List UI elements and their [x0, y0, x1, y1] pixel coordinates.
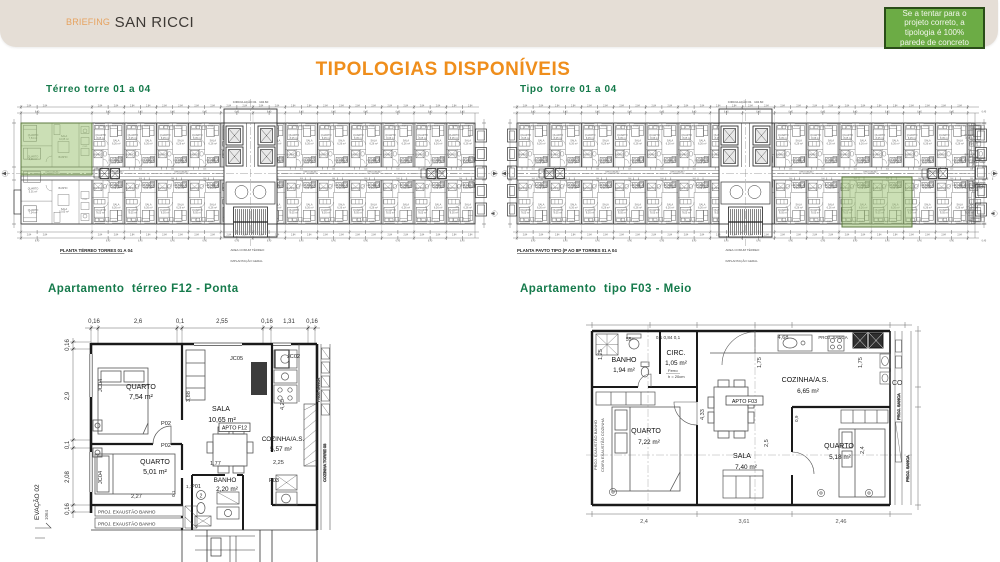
- svg-text:2,84: 2,84: [323, 105, 328, 107]
- svg-text:0,1: 0,1: [176, 319, 185, 325]
- svg-text:10,65 m²: 10,65 m²: [59, 211, 69, 214]
- svg-text:QUARTO: QUARTO: [824, 443, 854, 450]
- svg-text:6,26 m²: 6,26 m²: [209, 206, 218, 209]
- svg-text:6,40: 6,40: [428, 240, 433, 242]
- svg-text:BANHO: BANHO: [518, 154, 527, 157]
- svg-text:JC04 2,15 JC05: JC04 2,15 JC05: [589, 126, 607, 128]
- svg-text:104: 104: [300, 168, 303, 170]
- svg-text:CIRCULAÇÃO: CIRCULAÇÃO: [670, 170, 685, 173]
- svg-text:5,09 m²: 5,09 m²: [633, 162, 642, 165]
- svg-text:5,09 m²: 5,09 m²: [176, 187, 185, 190]
- svg-text:2,84: 2,84: [162, 234, 167, 236]
- svg-text:BANHO: BANHO: [383, 187, 392, 190]
- svg-text:JC04 2,15 JC05: JC04 2,15 JC05: [653, 126, 671, 128]
- svg-text:BANHO: BANHO: [905, 154, 914, 157]
- svg-text:BANHO: BANHO: [551, 154, 560, 157]
- svg-text:BANHO: BANHO: [126, 187, 135, 190]
- svg-text:COZINHA/A.S.: COZINHA/A.S.: [262, 436, 305, 443]
- svg-text:JC04 2,15 JC05: JC04 2,15 JC05: [621, 221, 639, 223]
- svg-text:2,84: 2,84: [291, 105, 296, 107]
- svg-text:8,05 m²: 8,05 m²: [96, 212, 105, 215]
- svg-text:8,05 m²: 8,05 m²: [586, 212, 595, 215]
- svg-text:2,84: 2,84: [571, 105, 576, 107]
- svg-text:8,05 m²: 8,05 m²: [290, 212, 299, 215]
- svg-text:5,09 m²: 5,09 m²: [665, 187, 674, 190]
- svg-text:BANHO: BANHO: [965, 154, 974, 157]
- svg-text:2,84: 2,84: [635, 105, 640, 107]
- svg-text:5,09 m²: 5,09 m²: [111, 187, 120, 190]
- svg-text:6,26 m²: 6,26 m²: [827, 142, 836, 145]
- svg-text:2,84: 2,84: [571, 234, 576, 236]
- svg-text:8,05 m²: 8,05 m²: [965, 212, 974, 215]
- svg-text:1,31: 1,31: [283, 319, 295, 325]
- svg-text:6,26 m²: 6,26 m²: [464, 206, 473, 209]
- svg-text:6,40: 6,40: [756, 111, 761, 113]
- svg-text:2,84: 2,84: [877, 234, 882, 236]
- svg-text:6,26 m²: 6,26 m²: [969, 206, 978, 209]
- svg-text:104: 104: [950, 168, 953, 170]
- svg-text:6,40: 6,40: [202, 240, 207, 242]
- svg-text:JC04 2,15 JC05: JC04 2,15 JC05: [557, 126, 575, 128]
- svg-text:JC04 2,15 JC05: JC04 2,15 JC05: [293, 126, 311, 128]
- svg-text:4,68: 4,68: [778, 335, 789, 341]
- svg-text:2,84: 2,84: [259, 105, 264, 107]
- svg-text:5,09 m²: 5,09 m²: [463, 162, 472, 165]
- svg-text:2,84: 2,84: [684, 234, 689, 236]
- svg-text:2,84: 2,84: [468, 234, 473, 236]
- svg-text:6,26 m²: 6,26 m²: [112, 206, 121, 209]
- svg-text:6,26 m²: 6,26 m²: [794, 206, 803, 209]
- svg-text:6,40: 6,40: [595, 111, 600, 113]
- svg-text:5,09 m²: 5,09 m²: [536, 162, 545, 165]
- svg-text:7,54 m²: 7,54 m²: [129, 394, 153, 401]
- svg-text:QUARTO: QUARTO: [126, 384, 156, 391]
- svg-text:2,84: 2,84: [780, 105, 785, 107]
- svg-text:IMPLANTAÇÃO GERAL: IMPLANTAÇÃO GERAL: [726, 258, 759, 263]
- svg-text:6,40: 6,40: [982, 111, 987, 113]
- svg-text:8,05 m²: 8,05 m²: [322, 137, 331, 140]
- svg-text:QUARTO: QUARTO: [140, 459, 170, 466]
- svg-text:2,84: 2,84: [893, 234, 898, 236]
- svg-text:CIRCULAÇÃO: CIRCULAÇÃO: [541, 170, 556, 173]
- svg-text:6,40: 6,40: [627, 240, 632, 242]
- svg-text:2,84: 2,84: [114, 105, 119, 107]
- svg-text:5,09 m²: 5,09 m²: [826, 162, 835, 165]
- svg-text:2,84: 2,84: [178, 234, 183, 236]
- svg-text:JC04 2,15 JC05: JC04 2,15 JC05: [814, 126, 832, 128]
- svg-text:5,09 m²: 5,09 m²: [633, 187, 642, 190]
- svg-text:6,40: 6,40: [692, 111, 697, 113]
- svg-text:2,84: 2,84: [98, 234, 103, 236]
- svg-text:8,05 m²: 8,05 m²: [386, 137, 395, 140]
- svg-text:5,09 m²: 5,09 m²: [601, 162, 610, 165]
- svg-text:2,84: 2,84: [893, 105, 898, 107]
- svg-text:2,84: 2,84: [307, 105, 312, 107]
- svg-text:1,1: 1,1: [186, 484, 193, 489]
- svg-text:BANHO: BANHO: [319, 187, 328, 190]
- svg-text:BANHO: BANHO: [351, 187, 360, 190]
- svg-text:JC04 2,15 JC05: JC04 2,15 JC05: [325, 126, 343, 128]
- svg-text:2,84: 2,84: [162, 105, 167, 107]
- svg-text:5,09 m²: 5,09 m²: [697, 187, 706, 190]
- svg-text:104: 104: [660, 168, 663, 170]
- svg-text:6,40: 6,40: [724, 240, 729, 242]
- svg-text:2,84: 2,84: [194, 234, 199, 236]
- svg-text:AREA COMUM TÉRREO: AREA COMUM TÉRREO: [726, 247, 760, 252]
- svg-text:BANHO: BANHO: [214, 477, 237, 484]
- svg-text:2,84: 2,84: [619, 105, 624, 107]
- svg-text:JC04 2,15 JC05: JC04 2,15 JC05: [782, 126, 800, 128]
- svg-text:2,84: 2,84: [404, 105, 409, 107]
- svg-text:8,05 m²: 8,05 m²: [290, 137, 299, 140]
- svg-text:2,84: 2,84: [635, 234, 640, 236]
- svg-text:8,05 m²: 8,05 m²: [354, 137, 363, 140]
- svg-text:5,09 m²: 5,09 m²: [143, 162, 152, 165]
- svg-text:104: 104: [171, 168, 174, 170]
- svg-text:8,05 m²: 8,05 m²: [450, 137, 459, 140]
- svg-text:2,84: 2,84: [619, 234, 624, 236]
- svg-text:CIRCULAÇÃO: CIRCULAÇÃO: [174, 170, 189, 173]
- svg-text:2,84: 2,84: [210, 105, 215, 107]
- svg-text:JC04 2,15 JC05: JC04 2,15 JC05: [963, 126, 981, 128]
- svg-text:5,09 m²: 5,09 m²: [463, 187, 472, 190]
- svg-text:6,40: 6,40: [138, 111, 143, 113]
- svg-text:2,84: 2,84: [371, 105, 376, 107]
- svg-text:2,9: 2,9: [65, 391, 71, 400]
- svg-text:2,84: 2,84: [114, 234, 119, 236]
- svg-text:5,09 m²: 5,09 m²: [568, 187, 577, 190]
- svg-text:2,84: 2,84: [323, 234, 328, 236]
- svg-text:BANHO: BANHO: [351, 154, 360, 157]
- svg-text:JC04 2,15 JC05: JC04 2,15 JC05: [557, 221, 575, 223]
- svg-text:104: 104: [171, 178, 174, 180]
- svg-text:104: 104: [332, 178, 335, 180]
- svg-text:6,40: 6,40: [756, 240, 761, 242]
- svg-text:6,26 m²: 6,26 m²: [434, 206, 443, 209]
- svg-text:6,40: 6,40: [396, 111, 401, 113]
- svg-text:JC04 2,15 JC05: JC04 2,15 JC05: [100, 221, 118, 223]
- svg-text:BANHO: BANHO: [447, 154, 456, 157]
- svg-text:6,26 m²: 6,26 m²: [369, 142, 378, 145]
- svg-text:6,26 m²: 6,26 m²: [891, 142, 900, 145]
- svg-text:6,40: 6,40: [106, 240, 111, 242]
- svg-text:104: 104: [364, 168, 367, 170]
- svg-text:2,84: 2,84: [404, 234, 409, 236]
- svg-text:104: 104: [950, 178, 953, 180]
- svg-text:BANHO: BANHO: [158, 154, 167, 157]
- svg-text:8,05 m²: 8,05 m²: [940, 212, 949, 215]
- svg-text:104: 104: [693, 178, 696, 180]
- svg-text:2,84: 2,84: [957, 234, 962, 236]
- svg-text:P02: P02: [161, 443, 171, 449]
- svg-text:6,26 m²: 6,26 m²: [369, 206, 378, 209]
- svg-text:6,26 m²: 6,26 m²: [634, 142, 643, 145]
- svg-text:2,84: 2,84: [275, 105, 280, 107]
- svg-text:2,84: 2,84: [371, 234, 376, 236]
- svg-text:BANHO: BANHO: [415, 154, 424, 157]
- svg-text:2,84: 2,84: [388, 105, 393, 107]
- svg-text:6,40: 6,40: [202, 111, 207, 113]
- svg-text:104: 104: [789, 168, 792, 170]
- svg-text:104: 104: [596, 178, 599, 180]
- svg-text:6,40: 6,40: [788, 111, 793, 113]
- svg-text:BANHO: BANHO: [615, 154, 624, 157]
- svg-text:6,40: 6,40: [660, 240, 665, 242]
- svg-text:104: 104: [396, 178, 399, 180]
- svg-text:P03: P03: [269, 478, 279, 484]
- svg-text:COZINHA TORRE 03: COZINHA TORRE 03: [322, 443, 327, 482]
- svg-text:2,84: 2,84: [27, 105, 32, 107]
- svg-text:BANHO: BANHO: [808, 187, 817, 190]
- svg-text:JC04: JC04: [98, 471, 104, 484]
- svg-text:5,09 m²: 5,09 m²: [208, 162, 217, 165]
- svg-text:2,84: 2,84: [845, 105, 850, 107]
- svg-text:2,84: 2,84: [555, 105, 560, 107]
- svg-text:2,84: 2,84: [27, 234, 32, 236]
- svg-text:6,26 m²: 6,26 m²: [859, 142, 868, 145]
- svg-text:5,09 m²: 5,09 m²: [794, 162, 803, 165]
- svg-text:5,09 m²: 5,09 m²: [923, 187, 932, 190]
- svg-text:5,09 m²: 5,09 m²: [433, 187, 442, 190]
- svg-text:JC04 2,15 JC05: JC04 2,15 JC05: [164, 221, 182, 223]
- svg-text:104: 104: [532, 168, 535, 170]
- svg-text:2,84: 2,84: [796, 105, 801, 107]
- svg-text:2,84: 2,84: [146, 234, 151, 236]
- svg-text:104: 104: [396, 168, 399, 170]
- svg-text:2,84: 2,84: [130, 105, 135, 107]
- svg-text:6,40: 6,40: [724, 111, 729, 113]
- svg-text:1064: 1064: [44, 509, 49, 520]
- svg-text:104: 104: [660, 178, 663, 180]
- svg-text:JC04: JC04: [98, 379, 104, 392]
- svg-text:2,84: 2,84: [700, 105, 705, 107]
- svg-text:0,16: 0,16: [65, 503, 71, 515]
- svg-text:6,65 m²: 6,65 m²: [797, 388, 819, 395]
- svg-text:JC02: JC02: [287, 354, 300, 360]
- svg-text:6,40: 6,40: [563, 240, 568, 242]
- svg-text:PROJ. SANCA: PROJ. SANCA: [905, 455, 910, 482]
- svg-text:2,84: 2,84: [603, 234, 608, 236]
- svg-text:2,84: 2,84: [861, 234, 866, 236]
- svg-text:COIFA EXAUSTÃO COZINHA: COIFA EXAUSTÃO COZINHA: [600, 418, 605, 472]
- svg-text:2: 2: [200, 494, 203, 500]
- svg-text:6,26 m²: 6,26 m²: [112, 142, 121, 145]
- svg-text:6,40: 6,40: [35, 240, 40, 242]
- svg-text:2,84: 2,84: [909, 234, 914, 236]
- svg-text:CIRCULAÇÃO: CIRCULAÇÃO: [863, 170, 878, 173]
- svg-text:8,05 m²: 8,05 m²: [193, 137, 202, 140]
- svg-text:8,05 m²: 8,05 m²: [779, 212, 788, 215]
- svg-text:JC04 2,15 JC05: JC04 2,15 JC05: [422, 126, 440, 128]
- svg-text:5,09 m²: 5,09 m²: [208, 187, 217, 190]
- svg-text:5,09 m²: 5,09 m²: [955, 187, 964, 190]
- svg-text:CIRCULAÇÃO: CIRCULAÇÃO: [367, 170, 382, 173]
- svg-text:6,26 m²: 6,26 m²: [144, 142, 153, 145]
- svg-text:BANHO: BANHO: [679, 154, 688, 157]
- svg-text:2,84: 2,84: [539, 234, 544, 236]
- svg-text:CIRCULAÇÃO: CIRCULAÇÃO: [927, 170, 942, 173]
- svg-text:APTO F03: APTO F03: [732, 399, 757, 405]
- svg-text:6,26 m²: 6,26 m²: [402, 142, 411, 145]
- svg-text:2,84: 2,84: [436, 105, 441, 107]
- svg-text:2,84: 2,84: [243, 105, 248, 107]
- svg-text:5,09 m²: 5,09 m²: [337, 162, 346, 165]
- svg-text:8,05 m²: 8,05 m²: [129, 137, 138, 140]
- svg-text:4,25: 4,25: [280, 399, 286, 410]
- svg-text:BANHO: BANHO: [612, 357, 637, 364]
- svg-text:5,09 m²: 5,09 m²: [826, 187, 835, 190]
- svg-text:4,33: 4,33: [700, 409, 706, 420]
- svg-text:8,05 m²: 8,05 m²: [811, 212, 820, 215]
- svg-text:Ferro: Ferro: [668, 368, 678, 373]
- svg-text:JC04 2,15 JC05: JC04 2,15 JC05: [389, 126, 407, 128]
- svg-text:JC04 2,15 JC05: JC04 2,15 JC05: [452, 126, 470, 128]
- svg-text:6,40: 6,40: [853, 111, 858, 113]
- svg-text:6,40: 6,40: [267, 111, 272, 113]
- svg-text:BANHO: BANHO: [59, 187, 68, 190]
- svg-text:1,75: 1,75: [858, 357, 864, 368]
- svg-text:2,84: 2,84: [523, 234, 528, 236]
- svg-text:CO: CO: [892, 380, 903, 387]
- svg-text:JC04 2,15 JC05: JC04 2,15 JC05: [653, 221, 671, 223]
- svg-text:6,26 m²: 6,26 m²: [305, 142, 314, 145]
- svg-text:BANHO: BANHO: [551, 187, 560, 190]
- svg-text:1,05 m²: 1,05 m²: [665, 360, 687, 367]
- svg-text:5,09 m²: 5,09 m²: [433, 162, 442, 165]
- svg-text:CIRCULAÇÃO 01 104.60: CIRCULAÇÃO 01 104.60: [233, 99, 269, 104]
- svg-text:8,05 m²: 8,05 m²: [129, 212, 138, 215]
- svg-text:CIRCULAÇÃO: CIRCULAÇÃO: [799, 170, 814, 173]
- svg-text:2,84: 2,84: [732, 105, 737, 107]
- svg-text:6,40: 6,40: [821, 240, 826, 242]
- svg-text:5,09 m²: 5,09 m²: [143, 187, 152, 190]
- svg-text:8,05 m²: 8,05 m²: [554, 137, 563, 140]
- svg-text:6,26 m²: 6,26 m²: [537, 142, 546, 145]
- svg-text:BANHO: BANHO: [383, 154, 392, 157]
- svg-text:5,09 m²: 5,09 m²: [369, 187, 378, 190]
- svg-text:3,61: 3,61: [739, 519, 750, 525]
- svg-text:6,26 m²: 6,26 m²: [537, 206, 546, 209]
- svg-text:6,40: 6,40: [170, 111, 175, 113]
- svg-text:BANHO: BANHO: [190, 187, 199, 190]
- svg-text:6,40: 6,40: [138, 240, 143, 242]
- svg-text:6,26 m²: 6,26 m²: [305, 206, 314, 209]
- svg-text:5,09 m²: 5,09 m²: [858, 162, 867, 165]
- svg-text:6,26 m²: 6,26 m²: [827, 206, 836, 209]
- svg-text:5,09 m²: 5,09 m²: [304, 162, 313, 165]
- svg-text:6,40: 6,40: [563, 111, 568, 113]
- svg-text:2,84: 2,84: [388, 234, 393, 236]
- svg-text:P01: P01: [191, 484, 201, 490]
- svg-text:104: 104: [459, 168, 462, 170]
- svg-text:104: 104: [821, 178, 824, 180]
- svg-text:6,26 m²: 6,26 m²: [634, 206, 643, 209]
- svg-text:8,05 m²: 8,05 m²: [161, 212, 170, 215]
- svg-text:PROJ. EXAUSTÃO BANHO: PROJ. EXAUSTÃO BANHO: [593, 420, 598, 470]
- svg-text:JC04 2,15 JC05: JC04 2,15 JC05: [525, 221, 543, 223]
- svg-text:2,84: 2,84: [652, 105, 657, 107]
- svg-text:6,26 m²: 6,26 m²: [666, 206, 675, 209]
- svg-text:2,84: 2,84: [178, 105, 183, 107]
- svg-text:2,84: 2,84: [227, 234, 232, 236]
- svg-text:BANHO: BANHO: [93, 187, 102, 190]
- svg-text:8,05 m²: 8,05 m²: [161, 137, 170, 140]
- svg-text:104: 104: [332, 168, 335, 170]
- svg-text:PROJ. EXAUSTÃO BANHO: PROJ. EXAUSTÃO BANHO: [98, 509, 156, 515]
- svg-text:CIRC.: CIRC.: [666, 350, 685, 357]
- svg-text:5,09 m²: 5,09 m²: [176, 162, 185, 165]
- svg-text:6,26 m²: 6,26 m²: [923, 142, 932, 145]
- svg-text:8,05 m²: 8,05 m²: [650, 137, 659, 140]
- svg-text:6,26 m²: 6,26 m²: [337, 206, 346, 209]
- svg-text:8,05 m²: 8,05 m²: [193, 212, 202, 215]
- svg-text:PROJ. SANCA: PROJ. SANCA: [896, 393, 901, 420]
- svg-text:2,84: 2,84: [780, 234, 785, 236]
- svg-text:5,09 m²: 5,09 m²: [369, 162, 378, 165]
- svg-text:BANHO: BANHO: [287, 154, 296, 157]
- svg-text:BANHO: BANHO: [776, 187, 785, 190]
- svg-text:BANHO: BANHO: [647, 187, 656, 190]
- svg-text:2,84: 2,84: [668, 105, 673, 107]
- svg-text:104: 104: [628, 178, 631, 180]
- svg-text:EVAÇÃO 02: EVAÇÃO 02: [32, 484, 41, 520]
- svg-text:JC04 2,15 JC05: JC04 2,15 JC05: [196, 221, 214, 223]
- svg-text:2,84: 2,84: [355, 105, 360, 107]
- svg-text:2,84: 2,84: [259, 234, 264, 236]
- svg-text:6,26 m²: 6,26 m²: [337, 142, 346, 145]
- svg-text:104: 104: [789, 178, 792, 180]
- svg-text:6,40: 6,40: [331, 111, 336, 113]
- svg-text:6,40: 6,40: [917, 111, 922, 113]
- svg-text:8,05 m²: 8,05 m²: [450, 212, 459, 215]
- svg-text:JC04 2,15 JC05: JC04 2,15 JC05: [847, 126, 865, 128]
- svg-text:JC04 2,15 JC05: JC04 2,15 JC05: [357, 126, 375, 128]
- svg-text:2,08: 2,08: [65, 471, 71, 483]
- svg-text:8,05 m²: 8,05 m²: [521, 137, 530, 140]
- svg-text:1,25: 1,25: [598, 349, 604, 360]
- svg-text:8,05 m²: 8,05 m²: [386, 212, 395, 215]
- svg-text:6,26 m²: 6,26 m²: [144, 206, 153, 209]
- svg-text:JC04 2,15 JC05: JC04 2,15 JC05: [132, 126, 150, 128]
- svg-text:2,20 m²: 2,20 m²: [216, 486, 238, 493]
- svg-text:6,26 m²: 6,26 m²: [955, 206, 964, 209]
- svg-text:7,40 m²: 7,40 m²: [735, 464, 757, 471]
- svg-text:2,84: 2,84: [339, 105, 344, 107]
- svg-text:104: 104: [459, 178, 462, 180]
- svg-text:2,84: 2,84: [957, 105, 962, 107]
- svg-text:2,84: 2,84: [436, 234, 441, 236]
- svg-text:6,40: 6,40: [531, 240, 536, 242]
- svg-text:JC04 2,15 JC05: JC04 2,15 JC05: [879, 126, 897, 128]
- svg-text:BANHO: BANHO: [287, 187, 296, 190]
- svg-text:BANHO: BANHO: [679, 187, 688, 190]
- svg-text:2,84: 2,84: [684, 105, 689, 107]
- svg-text:5,09 m²: 5,09 m²: [890, 162, 899, 165]
- svg-text:5,09 m²: 5,09 m²: [111, 162, 120, 165]
- svg-text:104: 104: [918, 168, 921, 170]
- svg-text:104: 104: [628, 168, 631, 170]
- svg-text:8,05 m²: 8,05 m²: [418, 212, 427, 215]
- svg-text:8,05 m²: 8,05 m²: [682, 212, 691, 215]
- svg-text:8,05 m²: 8,05 m²: [876, 137, 885, 140]
- svg-text:6,40: 6,40: [531, 111, 536, 113]
- svg-text:2,84: 2,84: [275, 234, 280, 236]
- svg-text:5,09 m²: 5,09 m²: [665, 162, 674, 165]
- svg-text:0,16: 0,16: [88, 319, 100, 325]
- svg-text:6,26 m²: 6,26 m²: [176, 142, 185, 145]
- svg-text:6,26 m²: 6,26 m²: [601, 206, 610, 209]
- svg-text:JC04 2,15 JC05: JC04 2,15 JC05: [389, 221, 407, 223]
